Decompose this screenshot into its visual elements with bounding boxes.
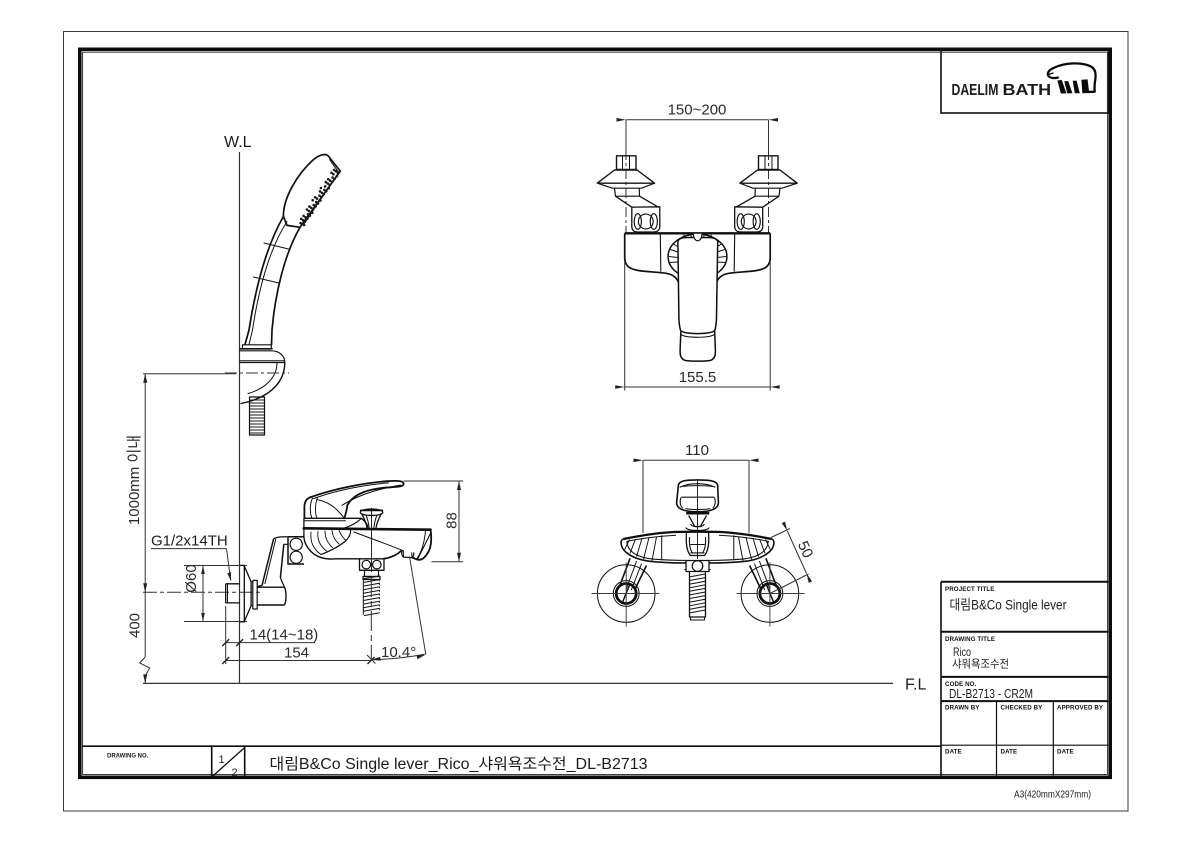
svg-text:88: 88 xyxy=(444,512,461,529)
svg-text:DATE: DATE xyxy=(1057,749,1074,756)
svg-text:샤워욕조수전: 샤워욕조수전 xyxy=(952,658,1009,671)
svg-text:2: 2 xyxy=(232,767,238,779)
svg-text:DRAWING NO.: DRAWING NO. xyxy=(107,754,149,760)
svg-text:10.4°: 10.4° xyxy=(381,644,416,661)
svg-text:Ø60: Ø60 xyxy=(183,564,200,592)
svg-text:A3(420mmX297mm): A3(420mmX297mm) xyxy=(1014,790,1091,801)
svg-text:DATE: DATE xyxy=(945,749,962,756)
svg-text:BATH: BATH xyxy=(1003,81,1052,99)
svg-text:DAELIM: DAELIM xyxy=(952,81,999,99)
svg-text:1000mm 이내: 1000mm 이내 xyxy=(126,435,143,525)
svg-text:400: 400 xyxy=(127,613,144,638)
svg-text:155.5: 155.5 xyxy=(679,369,717,386)
svg-text:G1/2x14TH: G1/2x14TH xyxy=(151,533,228,550)
svg-text:대림B&Co Single lever: 대림B&Co Single lever xyxy=(950,598,1067,613)
svg-text:PROJECT TITLE: PROJECT TITLE xyxy=(945,586,994,593)
svg-text:14(14~18): 14(14~18) xyxy=(250,627,319,644)
svg-text:1: 1 xyxy=(219,754,225,766)
svg-text:CHECKED BY: CHECKED BY xyxy=(1001,705,1044,712)
svg-text:DRAWN BY: DRAWN BY xyxy=(945,705,980,712)
svg-text:F.L: F.L xyxy=(905,677,926,694)
svg-text:대림B&Co Single lever_Rico_샤워욕조수: 대림B&Co Single lever_Rico_샤워욕조수전_DL-B2713 xyxy=(270,755,648,773)
svg-text:DL-B2713 - CR2M: DL-B2713 - CR2M xyxy=(949,687,1033,701)
svg-text:Rico: Rico xyxy=(953,645,971,659)
svg-text:154: 154 xyxy=(284,645,309,662)
svg-text:DRAWING TITLE: DRAWING TITLE xyxy=(945,636,995,643)
svg-text:APPROVED BY: APPROVED BY xyxy=(1057,705,1104,712)
svg-text:150~200: 150~200 xyxy=(668,102,727,119)
svg-text:W.L: W.L xyxy=(224,134,252,151)
svg-text:DATE: DATE xyxy=(1001,749,1018,756)
svg-text:110: 110 xyxy=(685,442,709,459)
